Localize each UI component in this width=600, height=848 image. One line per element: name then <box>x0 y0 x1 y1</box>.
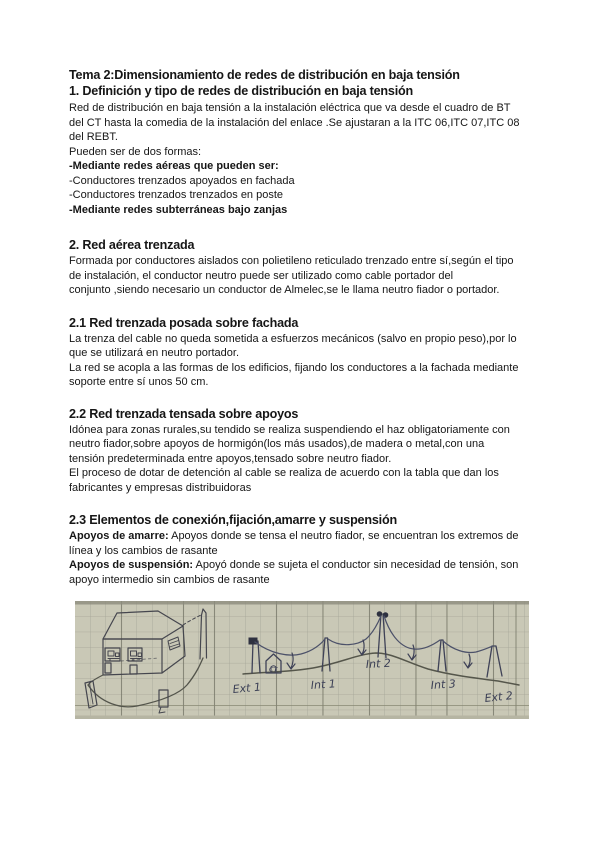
amarre-clamp <box>383 612 389 618</box>
term-label: Apoyos de suspensión: <box>69 559 193 571</box>
doc-title: Tema 2:Dimensionamiento de redes de dist… <box>69 67 542 83</box>
pole-label-int-1: Int 1 <box>310 677 336 692</box>
intro-line: del REBT. <box>69 130 542 145</box>
section-2-2: 2.2 Red trenzada tensada sobre apoyos Id… <box>69 406 542 496</box>
intro-line-aereas: -Mediante redes aéreas que pueden ser: <box>69 159 542 174</box>
section-1-body: Red de distribución en baja tensión a la… <box>69 101 542 217</box>
section-2-body: Formada por conductores aislados con pol… <box>69 254 542 298</box>
figure-photo: CT Ext 1 Int 1 Int 2 Int 3 Ext 2 <box>75 601 529 719</box>
ct-label: CT <box>269 666 279 674</box>
intro-line: -Conductores trenzados trenzados en post… <box>69 188 542 203</box>
document-page: Tema 2:Dimensionamiento de redes de dist… <box>0 0 600 848</box>
intro-line: Red de distribución en baja tensión a la… <box>69 101 542 116</box>
intro-line: del CT hasta la comedia de la instalació… <box>69 116 542 131</box>
intro-line: Pueden ser de dos formas: <box>69 145 542 160</box>
section-2: 2. Red aérea trenzada Formada por conduc… <box>69 237 542 298</box>
graph-paper <box>75 601 529 719</box>
section-2-1-heading: 2.1 Red trenzada posada sobre fachada <box>69 315 542 331</box>
term-apoyos-suspension: Apoyos de suspensión: Apoyó donde se suj… <box>69 558 543 587</box>
section-2-1: 2.1 Red trenzada posada sobre fachada La… <box>69 315 542 390</box>
section-2-3-body: Apoyos de amarre: Apoyos donde se tensa … <box>69 529 543 587</box>
section-2-heading: 2. Red aérea trenzada <box>69 237 542 253</box>
section-1-heading: 1. Definición y tipo de redes de distrib… <box>69 83 542 99</box>
section-2-2-heading: 2.2 Red trenzada tensada sobre apoyos <box>69 406 542 422</box>
section-2-1-body: La trenza del cable no queda sometida a … <box>69 332 542 390</box>
intro-line-subterraneas: -Mediante redes subterráneas bajo zanjas <box>69 203 542 218</box>
term-label: Apoyos de amarre: <box>69 530 169 542</box>
term-apoyos-amarre: Apoyos de amarre: Apoyos donde se tensa … <box>69 529 543 558</box>
pole-label-int-2: Int 2 <box>365 657 391 671</box>
sketch-svg: CT Ext 1 Int 1 Int 2 Int 3 Ext 2 <box>75 601 529 719</box>
pole-label-int-3: Int 3 <box>430 677 456 692</box>
section-2-3: 2.3 Elementos de conexión,fijación,amarr… <box>69 512 542 587</box>
section-2-2-body: Idónea para zonas rurales,su tendido se … <box>69 423 542 496</box>
intro-line: -Conductores trenzados apoyados en facha… <box>69 174 542 189</box>
pole-label-ext-1: Ext 1 <box>232 681 261 696</box>
section-2-3-heading: 2.3 Elementos de conexión,fijación,amarr… <box>69 512 542 528</box>
